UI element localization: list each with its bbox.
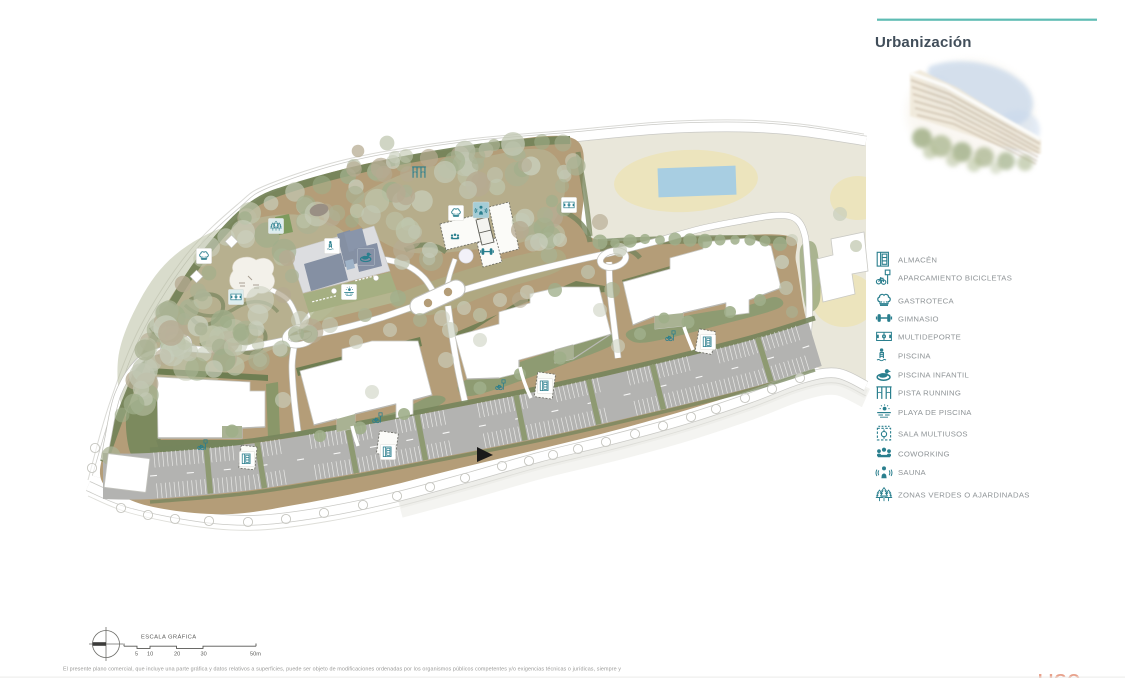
svg-text:PISTA RUNNING: PISTA RUNNING [898,388,961,397]
svg-text:SALA MULTIUSOS: SALA MULTIUSOS [898,429,968,438]
svg-text:30: 30 [201,652,207,658]
svg-text:20: 20 [174,652,180,658]
svg-text:ZONAS VERDES O AJARDINADAS: ZONAS VERDES O AJARDINADAS [898,490,1030,499]
svg-text:Urbanización: Urbanización [875,34,972,51]
svg-text:APARCAMIENTO BICICLETAS: APARCAMIENTO BICICLETAS [898,273,1012,282]
svg-text:SAUNA: SAUNA [898,468,927,477]
svg-text:PISCINA INFANTIL: PISCINA INFANTIL [898,370,969,379]
svg-text:El presente plano comercial, q: El presente plano comercial, que incluye… [63,667,621,673]
svg-text:ESCALA GRÁFICA: ESCALA GRÁFICA [141,634,197,641]
svg-text:ALMACÉN: ALMACÉN [898,255,937,264]
svg-text:GASTROTECA: GASTROTECA [898,296,955,305]
svg-text:50m: 50m [250,652,261,658]
svg-text:MULTIDEPORTE: MULTIDEPORTE [898,332,961,341]
svg-text:PISCINA: PISCINA [898,351,931,360]
svg-text:10: 10 [147,652,153,658]
svg-text:GIMNASIO: GIMNASIO [898,314,939,323]
svg-text:PLAYA DE PISCINA: PLAYA DE PISCINA [898,408,972,417]
svg-text:5: 5 [135,652,138,658]
svg-text:COWORKING: COWORKING [898,449,950,458]
